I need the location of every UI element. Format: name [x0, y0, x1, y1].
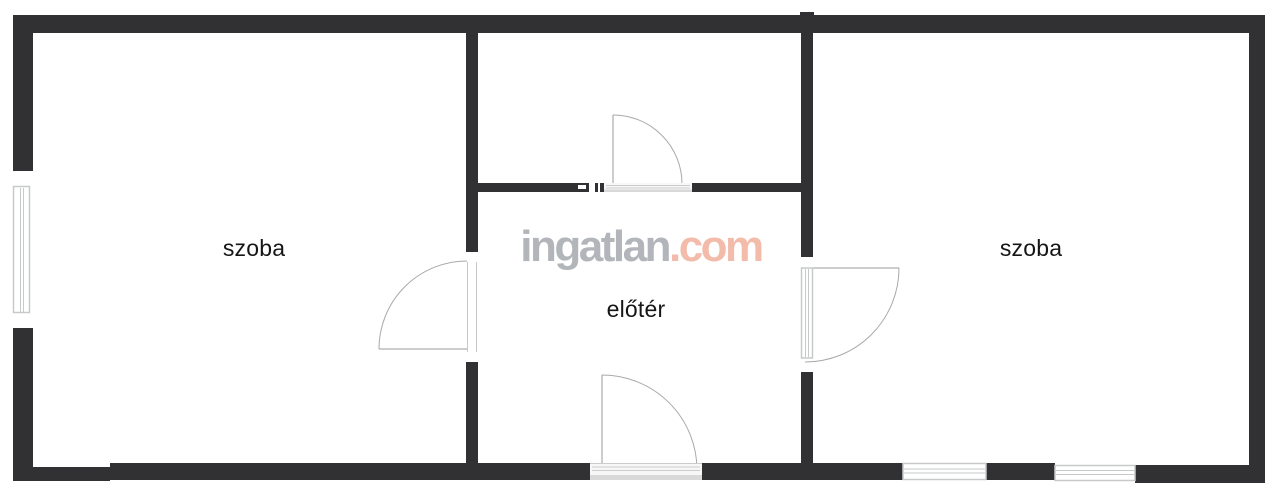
wall-bottom-far-left — [13, 467, 110, 481]
watermark-tld: .com — [669, 222, 762, 271]
window-frame — [14, 187, 30, 313]
ingatlan-watermark: ingatlan.com — [520, 222, 762, 271]
wall-top-stub — [800, 12, 814, 16]
window-bottom-1 — [903, 464, 986, 480]
window-right-interior-wall — [802, 268, 813, 358]
window-bottom-2 — [1055, 466, 1135, 481]
doors — [379, 115, 899, 470]
wall-top — [13, 15, 1265, 33]
doorway-left-jamb — [468, 262, 477, 352]
wall-interior-left-upper — [466, 33, 478, 252]
wall-right — [1249, 15, 1265, 483]
wall-bottom-left — [110, 463, 590, 480]
floorplan-canvas: ingatlan.com szoba előtér szoba — [0, 0, 1280, 498]
wall-interior-right-lower — [801, 372, 813, 466]
window-frame — [802, 268, 813, 358]
door-arc — [379, 261, 467, 349]
door-arc — [805, 268, 899, 362]
door-arc — [613, 115, 682, 184]
threshold-strip — [604, 190, 692, 193]
door-top-room — [613, 115, 682, 184]
room-label-szoba-left: szoba — [223, 235, 285, 261]
window-left-wall — [14, 187, 30, 313]
wall-left-lower — [13, 328, 33, 481]
wall-interior-left-lower — [466, 362, 478, 464]
threshold-top-room — [604, 183, 692, 192]
watermark-word: ingatlan — [520, 222, 669, 271]
room-label-eloter: előtér — [607, 296, 666, 322]
window-frame — [903, 464, 986, 480]
wall-left-upper — [13, 15, 33, 171]
door-entrance — [602, 375, 697, 470]
wall-artifact-bar — [595, 183, 598, 192]
wall-bottom-between-windows — [986, 463, 1055, 480]
wall-interior-mid-right — [692, 183, 801, 192]
door-arc — [602, 375, 697, 470]
room-label-szoba-right: szoba — [1000, 235, 1062, 261]
wall-bottom-right — [1135, 465, 1249, 483]
wall-interior-right-upper — [801, 33, 813, 257]
window-frame — [1055, 466, 1135, 481]
door-left-room — [379, 261, 467, 349]
wall-artifact-bar — [600, 183, 604, 192]
threshold-strip — [590, 475, 702, 480]
door-right-room — [805, 268, 899, 362]
threshold-entrance — [590, 463, 702, 480]
floorplan: ingatlan.com szoba előtér szoba — [0, 0, 1280, 498]
wall-artifact — [573, 183, 604, 192]
wall-interior-mid-left — [478, 183, 573, 192]
wall-artifact-notch — [578, 185, 586, 189]
